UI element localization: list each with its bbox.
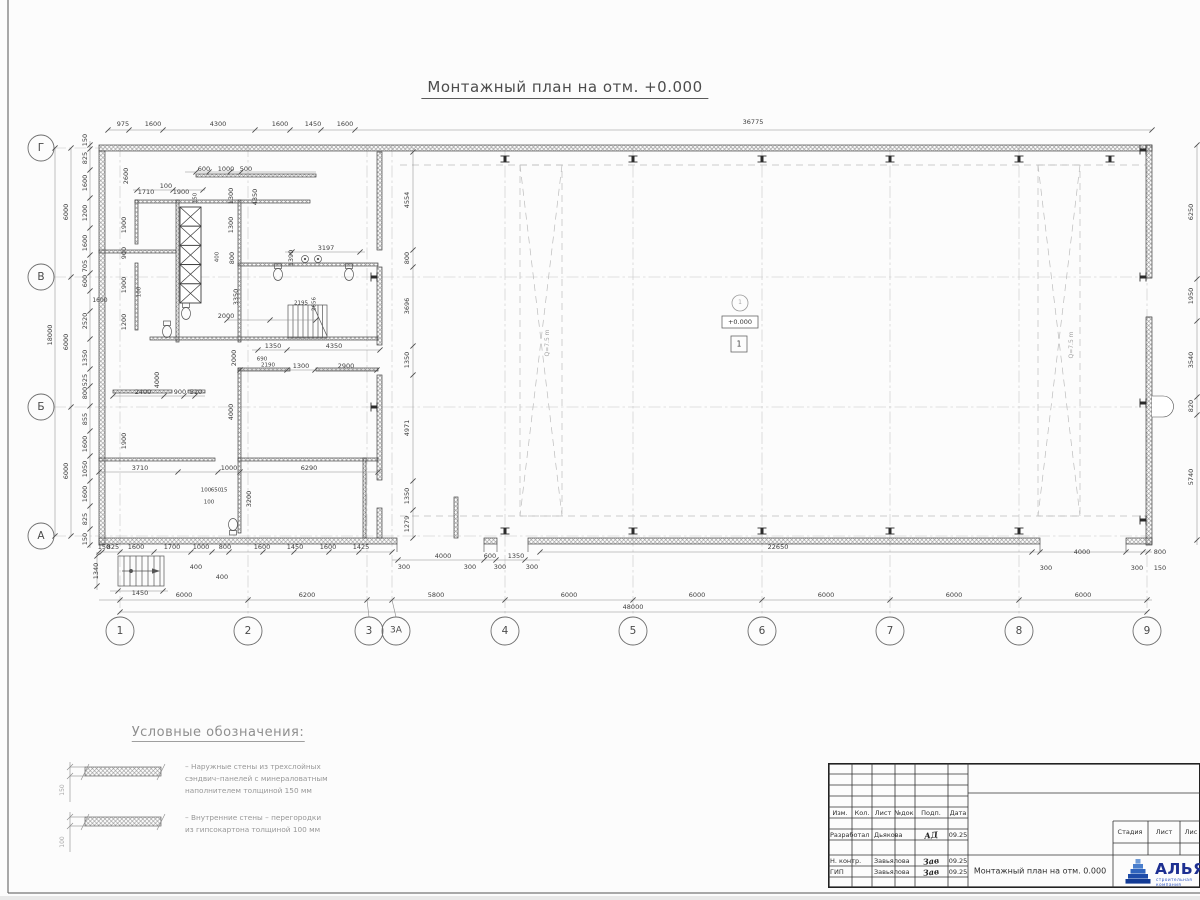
dim-label: 6000 [63, 204, 70, 221]
dim-label: В [37, 272, 44, 283]
dim-label: 1600 [82, 436, 89, 453]
dim-label: 2520 [82, 313, 89, 330]
alliance-logo-icon [828, 763, 1200, 888]
dim-label: 4000 [228, 404, 235, 421]
crane-zone [400, 165, 1146, 516]
dim-label: 1900 [121, 217, 128, 234]
dim-label: 1390 [288, 250, 295, 267]
dim-label: 5800 [428, 592, 445, 599]
dim-label: 1340 [93, 563, 100, 580]
alliance-logo-subtext: строительная компания [1156, 878, 1200, 888]
dim-label: 1050 [82, 461, 89, 478]
dim-label: 4000 [154, 372, 161, 389]
dim-label: 1600 [128, 544, 145, 551]
dim-label: 600 [198, 166, 210, 173]
dim-label: 1300 [228, 188, 235, 205]
dim-label: 1000 [218, 166, 235, 173]
dim-label: 150 [82, 533, 89, 545]
dim-label: 300 [398, 564, 410, 571]
dim-label: 1200 [121, 314, 128, 331]
dim-label: 6000 [689, 592, 706, 599]
dim-label: Г [38, 143, 44, 154]
toilet-icons [163, 264, 354, 535]
dim-label: 4971 [404, 420, 411, 437]
dim-label: 600 [484, 553, 496, 560]
dim-label: 2656 [312, 297, 318, 311]
dim-label: 6000 [946, 592, 963, 599]
dim-label: 1350 [404, 352, 411, 369]
bubble-leaders [367, 600, 396, 617]
dim-label: 1900 [173, 189, 190, 196]
dim-label: 1900 [121, 433, 128, 450]
dim-label: 1279 [404, 516, 411, 533]
dim-label: 5740 [1188, 469, 1195, 486]
dim-label: 2000 [218, 313, 235, 320]
dim-label: 6000 [63, 463, 70, 480]
dim-label: 525 [82, 374, 89, 386]
dim-label: 4350 [326, 343, 343, 350]
dim-label: 2000 [231, 350, 238, 367]
dim-label: 15 [221, 488, 228, 494]
dim-label: 4554 [404, 192, 411, 209]
dim-label: 4350 [252, 189, 259, 206]
dim-label: 1300 [228, 217, 235, 234]
dim-label: 3А [390, 627, 402, 636]
dim-label: 975 [117, 121, 129, 128]
dim-label: 6 [759, 626, 766, 637]
dim-label: 9 [1144, 626, 1151, 637]
dim-label: 1600 [92, 298, 107, 304]
dim-label: 3350 [233, 289, 240, 306]
dim-label: 3696 [404, 298, 411, 315]
dim-label: 6000 [176, 592, 193, 599]
dim-label: 1600 [320, 544, 337, 551]
dim-label: 4000 [435, 553, 452, 560]
dim-label: 825 [107, 544, 119, 551]
dim-label: 2190 [261, 363, 275, 369]
dim-label: 510 [190, 389, 202, 396]
dim-label: 1710 [138, 189, 155, 196]
dim-label: 100 [204, 500, 215, 506]
dim-label: 1200 [82, 205, 89, 222]
dim-label: 36775 [743, 119, 764, 126]
dim-label: 6000 [63, 334, 70, 351]
dim-label: 400 [216, 574, 228, 581]
dim-label: 4 [502, 626, 509, 637]
dim-label: 18000 [47, 325, 54, 346]
dim-label: 500 [240, 166, 252, 173]
dim-label: 1900 [121, 277, 128, 294]
dim-label: +0.000 [728, 319, 752, 326]
dim-label: 1000 [193, 544, 210, 551]
dim-label: 1300 [293, 363, 310, 370]
legend-bars [67, 762, 165, 852]
dim-label: 855 [82, 413, 89, 425]
dim-label: 800 [404, 252, 411, 264]
dim-label: 100 [137, 287, 143, 298]
dim-label: 3540 [1188, 352, 1195, 369]
dim-label: 400 [215, 252, 221, 263]
dim-label: 4000 [1074, 549, 1091, 556]
dim-label: 100 [160, 183, 172, 190]
dim-label: А [37, 531, 44, 542]
column-icons [371, 146, 1146, 535]
sheet-title: Монтажный план на отм. +0.000 [421, 78, 708, 99]
dim-label: 150 [82, 134, 89, 146]
dim-label: 6000 [561, 592, 578, 599]
dim-label: 900 [121, 247, 128, 259]
legend-item-exterior: – Наружные стены из трехслойных сэндвич–… [185, 761, 328, 797]
dim-label: 100 [201, 488, 212, 494]
dim-label: 1600 [82, 486, 89, 503]
dim-label: 1350 [508, 553, 525, 560]
wall-details [397, 278, 1174, 552]
dim-label: 3200 [246, 491, 253, 508]
dim-label: 5 [630, 626, 637, 637]
dim-label: 300 [494, 564, 506, 571]
dim-label: 1350 [265, 343, 282, 350]
dim-label: 1600 [254, 544, 271, 551]
dim-label: 7 [887, 626, 894, 637]
legend-item-interior: – Внутренние стены – перегородки из гипс… [185, 812, 321, 836]
dim-label: 300 [464, 564, 476, 571]
dim-label: 800 [82, 387, 89, 399]
dim-label: 1950 [1188, 288, 1195, 305]
dim-label: 1425 [353, 544, 370, 551]
dim-label: 6290 [301, 465, 318, 472]
dim-label: 150 [1154, 565, 1166, 572]
dim-label: 8 [1016, 626, 1023, 637]
dim-label: 48000 [623, 604, 644, 611]
dim-label: 3197 [318, 245, 335, 252]
dim-label: 3 [366, 626, 373, 637]
dim-label: 1 [117, 626, 124, 637]
dim-label: Б [37, 402, 44, 413]
legend-title: Условные обозначения: [132, 725, 305, 742]
dim-label: 300 [1131, 565, 1143, 572]
dim-label: 1450 [287, 544, 304, 551]
dim-label: 1600 [82, 175, 89, 192]
dim-label: 300 [526, 564, 538, 571]
dim-label: 4300 [210, 121, 227, 128]
dim-label: 6250 [1188, 204, 1195, 221]
dim-label: 1450 [305, 121, 322, 128]
dim-label: 800 [219, 544, 231, 551]
dim-label: 800 [1154, 549, 1166, 556]
dim-label: 1000 [221, 465, 238, 472]
dim-label: 400 [190, 564, 202, 571]
dim-label: 3710 [132, 465, 149, 472]
dim-label: 1350 [82, 350, 89, 367]
dim-label: 22650 [768, 544, 789, 551]
sink-icons [302, 256, 322, 263]
dim-label: 705 [82, 260, 89, 272]
dim-label: 100 [60, 836, 66, 847]
dim-label: 6200 [299, 592, 316, 599]
dim-label: 1600 [145, 121, 162, 128]
drawing-sheet: Монтажный план на отм. +0.000 [0, 0, 1200, 900]
dim-label: 825 [82, 152, 89, 164]
dim-label: 300 [1040, 565, 1052, 572]
shaft-boxes [180, 207, 201, 303]
title-block: Изм.Кол.Лист№докПодп.ДатаРазработалДьяко… [828, 763, 1200, 888]
dim-label: 1350 [404, 488, 411, 505]
dim-label: 800 [229, 252, 236, 264]
dim-label: 1 [737, 340, 742, 348]
dim-label: 1600 [337, 121, 354, 128]
dim-label: 900 [174, 389, 186, 396]
dim-label: 2 [245, 626, 252, 637]
dim-label: 1600 [272, 121, 289, 128]
dim-label: 2400 [135, 389, 152, 396]
sheet-frame [8, 0, 1200, 893]
dim-label: 2900 [338, 363, 355, 370]
dim-label: Q=7.5 m [545, 329, 551, 356]
dim-label: 150 [193, 193, 199, 204]
stair-entrance [118, 556, 164, 586]
dim-label: 150 [60, 784, 66, 795]
stair-interior [288, 305, 327, 338]
page-edge [0, 896, 1200, 900]
dim-label: 1700 [164, 544, 181, 551]
dim-label: 6000 [818, 592, 835, 599]
alliance-logo-text: АЛЬЯНС [1155, 860, 1200, 878]
dim-label: 820 [1188, 400, 1195, 412]
dim-label: 1 [738, 300, 742, 306]
dim-label: 600 [82, 275, 89, 287]
dim-label: 1450 [132, 590, 149, 597]
dim-label: 6000 [1075, 592, 1092, 599]
dim-label: Q=7.5 m [1069, 331, 1075, 358]
dim-label: 2195 [294, 301, 308, 307]
dim-label: 1600 [82, 235, 89, 252]
dim-label: 825 [82, 513, 89, 525]
dim-label: 2600 [123, 168, 130, 185]
